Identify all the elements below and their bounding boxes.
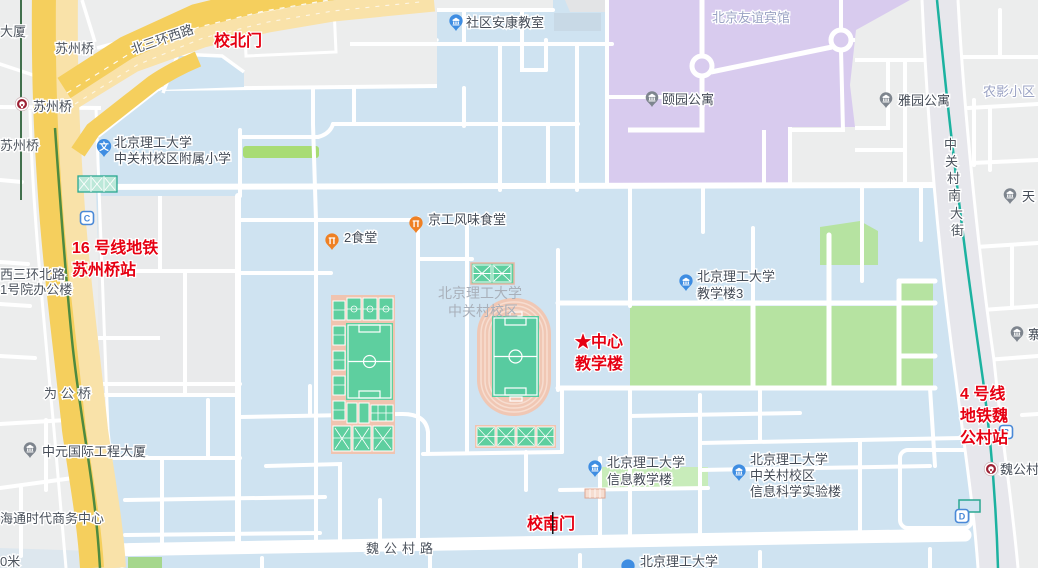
svg-text:地铁魏: 地铁魏 (960, 406, 1008, 425)
svg-text:★中心: ★中心 (575, 332, 623, 351)
svg-text:西三环北路: 西三环北路 (0, 267, 65, 282)
svg-text:校南门: 校南门 (527, 514, 575, 533)
svg-text:教学楼: 教学楼 (575, 354, 623, 373)
svg-text:中元国际工程大厦: 中元国际工程大厦 (42, 444, 146, 459)
svg-text:关: 关 (945, 154, 958, 169)
svg-text:北京理工大学: 北京理工大学 (750, 452, 828, 467)
svg-text:C: C (84, 214, 91, 224)
svg-text:北京理工大学: 北京理工大学 (640, 554, 718, 568)
svg-text:4 号线: 4 号线 (960, 384, 1005, 403)
svg-text:寨: 寨 (1028, 327, 1038, 342)
svg-text:中关村校区: 中关村校区 (448, 303, 518, 319)
svg-text:文: 文 (98, 141, 109, 153)
svg-text:16 号线地铁: 16 号线地铁 (72, 238, 158, 257)
svg-text:魏公村: 魏公村 (1000, 462, 1038, 477)
svg-text:校北门: 校北门 (214, 31, 262, 50)
svg-text:中关村校区: 中关村校区 (750, 468, 815, 483)
svg-text:教学楼3: 教学楼3 (697, 286, 743, 301)
svg-text:街: 街 (951, 223, 964, 238)
svg-text:魏公村路: 魏公村路 (366, 541, 438, 556)
svg-text:D: D (959, 512, 966, 522)
svg-text:北京理工大学: 北京理工大学 (607, 455, 685, 470)
svg-text:中: 中 (944, 137, 957, 152)
svg-text:海通时代商务中心: 海通时代商务中心 (0, 511, 104, 526)
svg-text:北京友谊宾馆: 北京友谊宾馆 (712, 10, 790, 25)
svg-text:南: 南 (948, 188, 961, 203)
svg-text:社区安康教室: 社区安康教室 (466, 15, 544, 30)
svg-text:信息教学楼: 信息教学楼 (607, 472, 672, 487)
svg-text:公村站: 公村站 (960, 428, 1008, 447)
svg-text:中关村校区附属小学: 中关村校区附属小学 (114, 151, 231, 166)
svg-text:北京理工大学: 北京理工大学 (438, 285, 522, 301)
svg-text:信息科学实验楼: 信息科学实验楼 (750, 484, 841, 499)
svg-text:苏州桥: 苏州桥 (0, 138, 39, 153)
svg-text:苏州桥站: 苏州桥站 (72, 260, 136, 279)
svg-text:为公桥: 为公桥 (44, 386, 95, 401)
svg-text:雅园公寓: 雅园公寓 (898, 93, 950, 108)
svg-text:农影小区: 农影小区 (983, 84, 1035, 99)
svg-text:大: 大 (950, 206, 963, 221)
svg-text:苏州桥: 苏州桥 (33, 99, 72, 114)
svg-text:村: 村 (947, 171, 960, 186)
svg-text:京工风味食堂: 京工风味食堂 (428, 212, 506, 227)
svg-text:2食堂: 2食堂 (344, 230, 377, 245)
svg-text:苏州桥: 苏州桥 (55, 41, 94, 56)
svg-text:大厦: 大厦 (0, 24, 26, 39)
svg-text:天: 天 (1022, 189, 1035, 204)
svg-text:北京理工大学: 北京理工大学 (697, 269, 775, 284)
svg-text:1号院办公楼: 1号院办公楼 (0, 282, 72, 297)
svg-text:北京理工大学: 北京理工大学 (114, 135, 192, 150)
svg-text:颐园公寓: 颐园公寓 (662, 92, 714, 107)
svg-text:0米: 0米 (0, 554, 20, 568)
